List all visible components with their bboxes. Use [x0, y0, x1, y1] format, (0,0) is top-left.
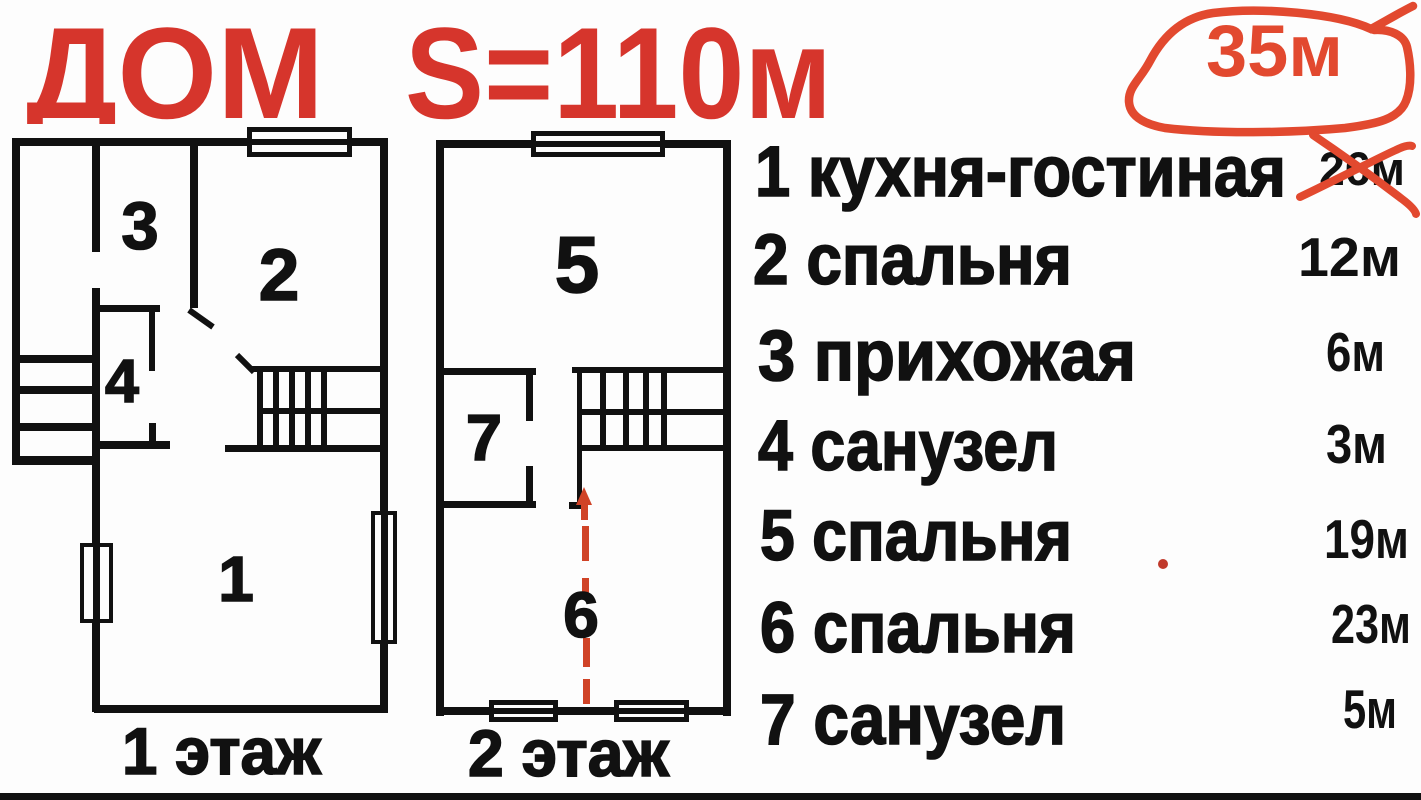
- svg-text:4: 4: [105, 347, 139, 415]
- svg-text:3м: 3м: [1326, 413, 1387, 475]
- svg-text:2: 2: [259, 235, 300, 316]
- svg-text:6 спальня: 6 спальня: [760, 589, 1076, 668]
- svg-text:1 кухня-гостиная: 1 кухня-гостиная: [755, 133, 1286, 212]
- svg-text:S=110м: S=110м: [405, 0, 832, 146]
- svg-text:3 прихожая: 3 прихожая: [758, 317, 1136, 396]
- svg-text:1 этаж: 1 этаж: [122, 714, 322, 788]
- svg-text:2 этаж: 2 этаж: [468, 716, 670, 790]
- svg-text:19м: 19м: [1324, 508, 1409, 570]
- svg-text:5: 5: [555, 220, 600, 309]
- svg-text:2 спальня: 2 спальня: [753, 221, 1072, 300]
- svg-text:23м: 23м: [1331, 593, 1411, 655]
- svg-text:6: 6: [563, 579, 599, 651]
- svg-text:12м: 12м: [1298, 226, 1401, 288]
- svg-text:7 санузел: 7 санузел: [760, 681, 1066, 760]
- svg-text:1: 1: [218, 543, 254, 615]
- svg-text:4 санузел: 4 санузел: [758, 407, 1058, 486]
- svg-text:5 спальня: 5 спальня: [760, 497, 1072, 576]
- svg-text:7: 7: [466, 401, 502, 474]
- svg-text:6м: 6м: [1326, 321, 1385, 383]
- svg-text:35м: 35м: [1206, 11, 1343, 92]
- svg-text:5м: 5м: [1343, 678, 1397, 740]
- svg-text:3: 3: [121, 189, 158, 264]
